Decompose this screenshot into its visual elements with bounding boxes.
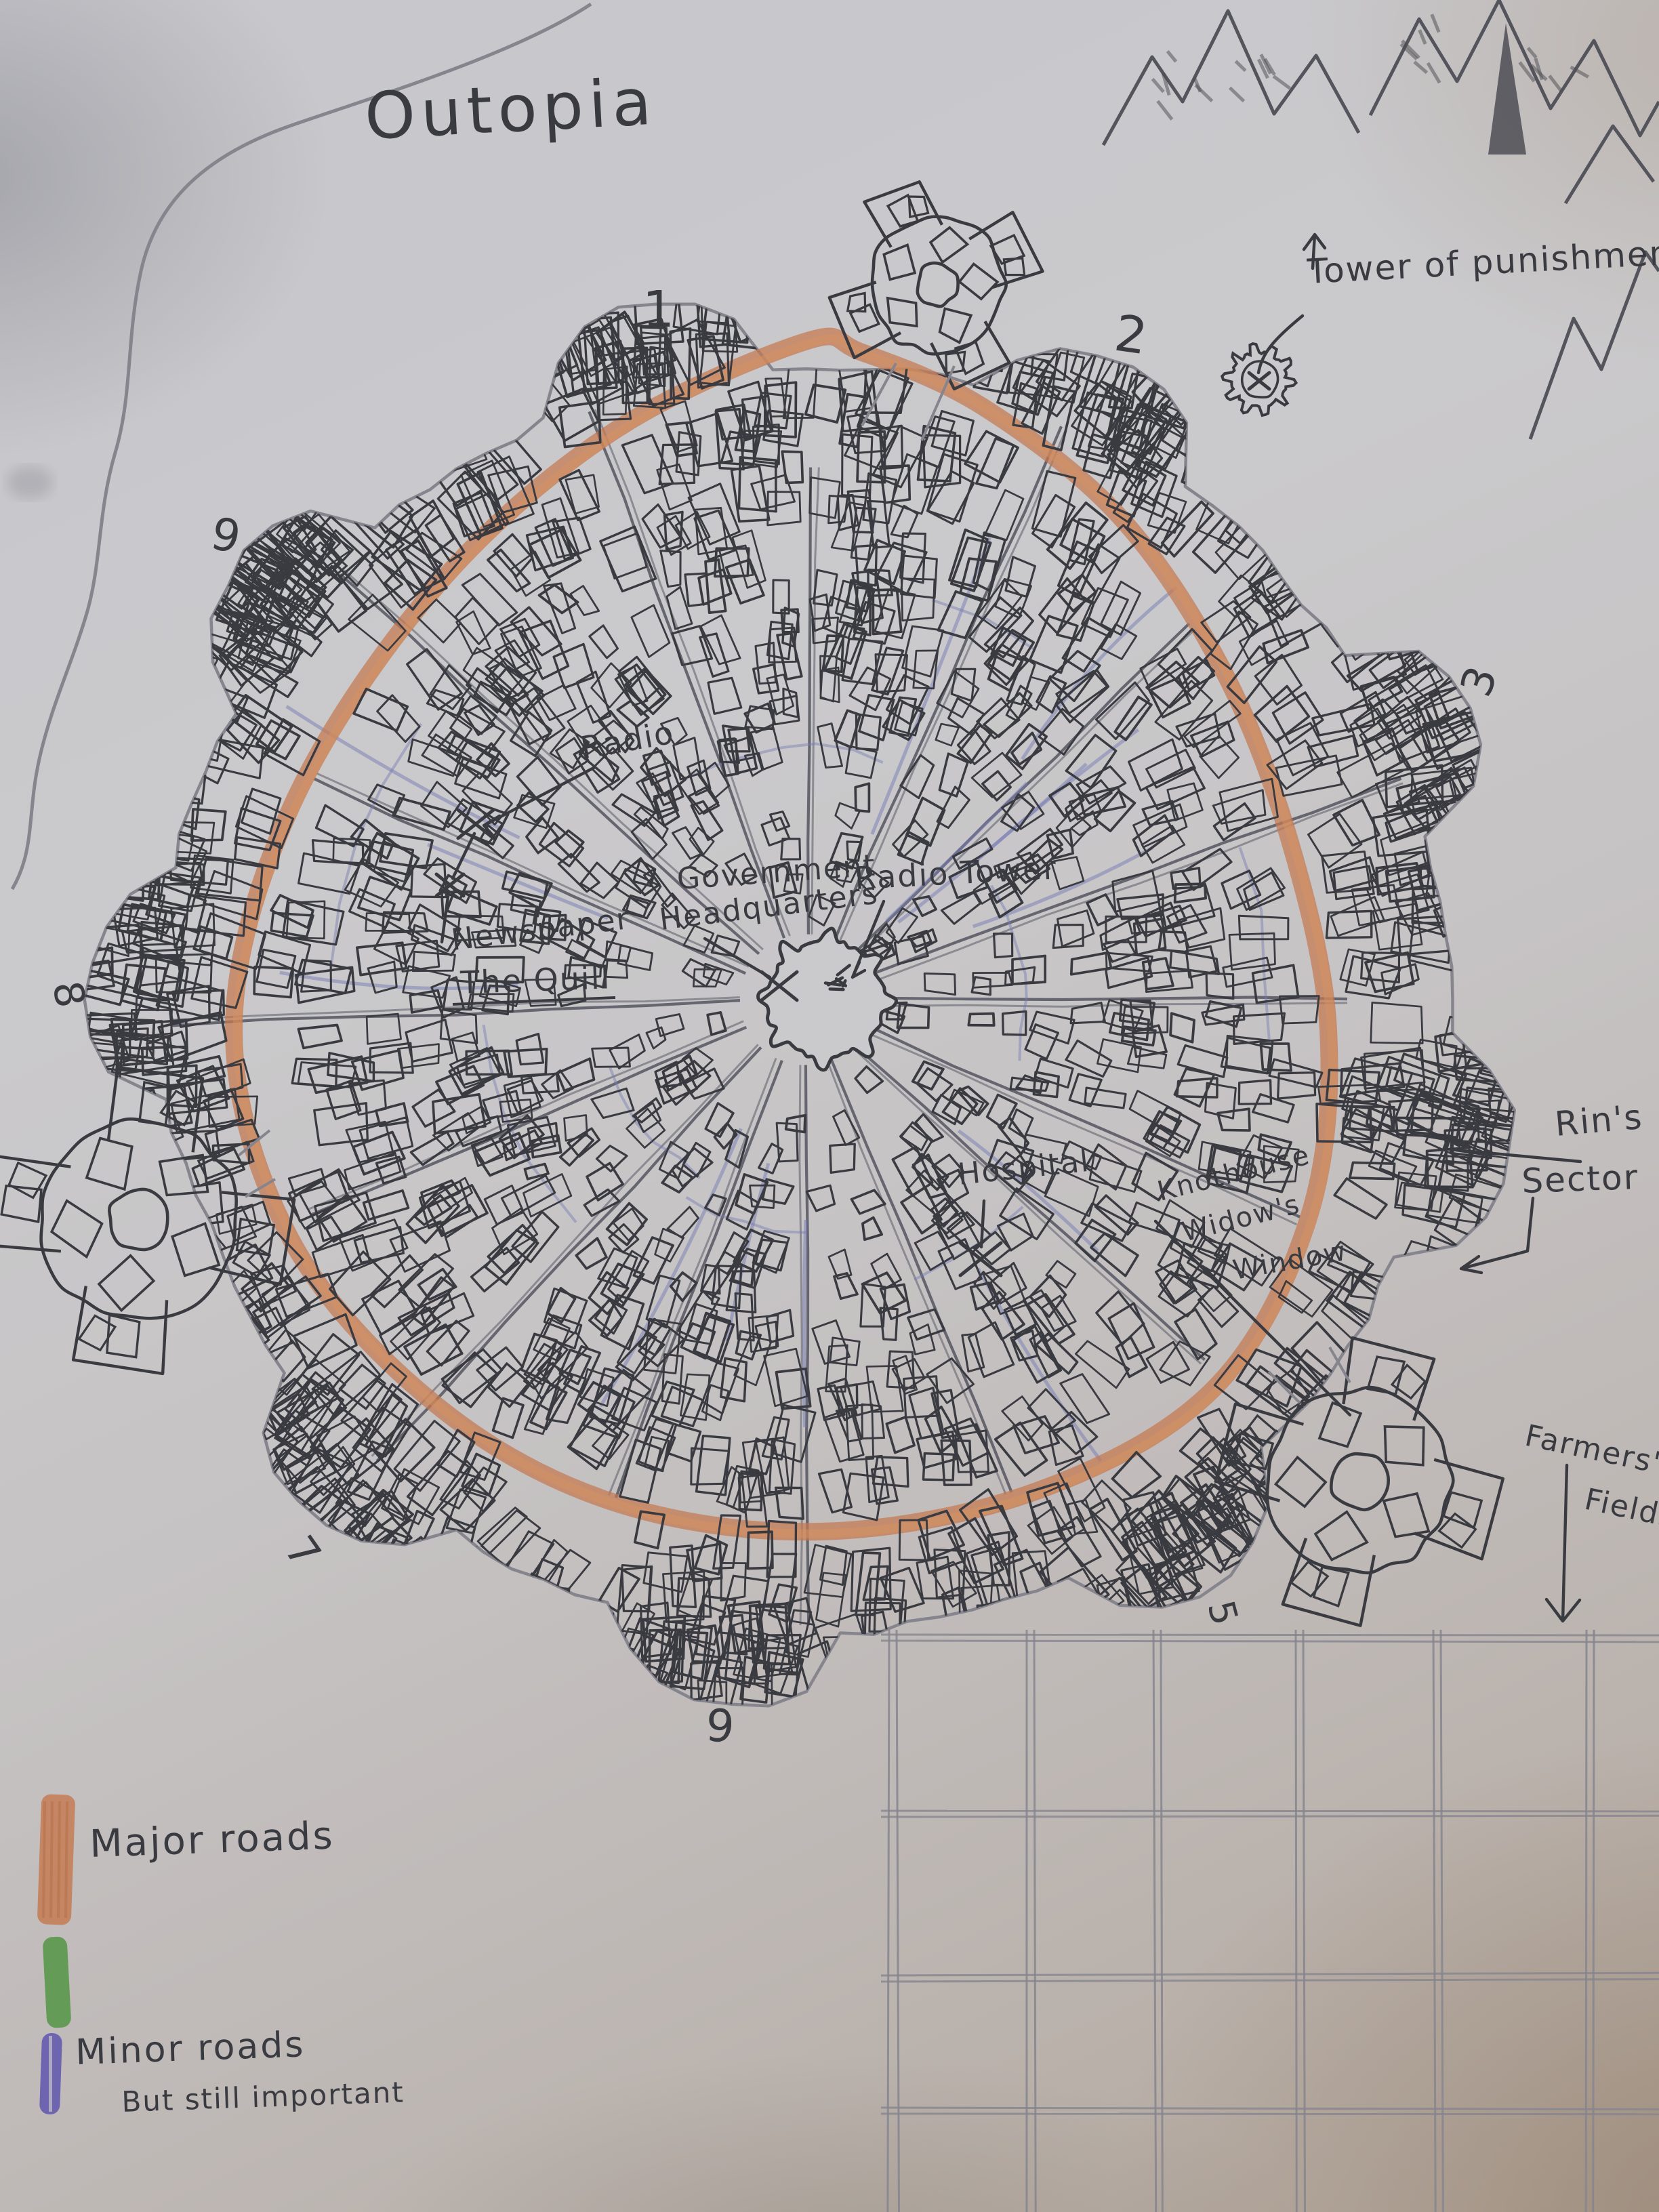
- city-block: [1174, 1069, 1214, 1107]
- field-grid-line: [1593, 1630, 1594, 2212]
- city-block: [1232, 443, 1313, 512]
- city-block: [1239, 1080, 1271, 1104]
- city-block: [1059, 1601, 1101, 1652]
- city-block: [541, 1587, 569, 1652]
- city-block: [764, 292, 793, 330]
- city-block: [628, 1665, 668, 1712]
- city-block: [814, 570, 838, 605]
- city-block: [810, 478, 840, 518]
- city-block: [1308, 814, 1361, 867]
- city-block: [1128, 1047, 1166, 1069]
- city-block: [907, 798, 945, 845]
- mountains: [1103, 0, 1659, 439]
- field-grid-line: [881, 1979, 1659, 1982]
- field-grid-line: [881, 1635, 1659, 1635]
- town-block: [888, 195, 918, 226]
- city-block: [1233, 451, 1290, 501]
- city-block: [832, 1674, 868, 1734]
- mountain-shading: [1168, 52, 1176, 62]
- city-block: [121, 1217, 170, 1269]
- town-block: [888, 298, 917, 326]
- city-block: [106, 808, 154, 842]
- city-block: [127, 734, 178, 771]
- city-block: [373, 1537, 444, 1599]
- city-block: [566, 475, 599, 514]
- city-block: [762, 818, 790, 846]
- city-block: [1198, 393, 1260, 472]
- city-block: [488, 550, 530, 591]
- map-title-text: Outopia: [363, 65, 658, 155]
- city-block: [142, 651, 218, 722]
- city-block: [1423, 710, 1491, 762]
- city-block: [584, 1189, 619, 1216]
- city-block: [937, 1633, 982, 1706]
- town-arm: [969, 212, 1042, 287]
- city-block: [1301, 1376, 1376, 1447]
- legend-swatch-texture: [66, 1801, 67, 1918]
- town-block: [1319, 1403, 1361, 1447]
- city-block: [759, 1144, 783, 1174]
- city-block: [617, 1326, 656, 1374]
- town-block: [1443, 1492, 1481, 1528]
- city-block: [1473, 813, 1514, 852]
- town-block: [52, 1201, 102, 1257]
- label-rins: Rin's: [1553, 1097, 1645, 1144]
- town-neck: [1330, 1347, 1350, 1382]
- city-block: [1435, 1198, 1494, 1258]
- city-block: [1279, 996, 1319, 1024]
- radio-tower-scribble: [830, 989, 844, 989]
- city-block: [100, 846, 159, 882]
- mountain-ridge: [1103, 11, 1359, 145]
- city-block: [474, 366, 529, 428]
- city-block: [211, 662, 276, 718]
- city-block: [340, 1220, 408, 1271]
- main-city: [56, 276, 1547, 1741]
- city-block: [541, 1550, 590, 1603]
- town-block: [1385, 1427, 1424, 1465]
- city-block: [783, 689, 798, 717]
- mountain-shading: [1428, 63, 1439, 83]
- town-centre: [918, 263, 958, 306]
- field-grid-line: [1153, 1630, 1156, 2212]
- city-block: [1267, 1457, 1335, 1518]
- mountain-shading: [1420, 30, 1426, 44]
- mountain-shading: [1273, 76, 1290, 88]
- city-block: [1378, 592, 1431, 640]
- city-block: [271, 913, 313, 937]
- city-block: [1454, 957, 1502, 998]
- city-block: [1182, 444, 1227, 495]
- city-block: [468, 1585, 514, 1637]
- city-block: [432, 352, 493, 415]
- field-grid-line: [1433, 1630, 1435, 2212]
- city-block: [999, 1635, 1047, 1691]
- city-block: [909, 1388, 944, 1438]
- city-block: [1294, 1410, 1340, 1454]
- outopia-map-photo: Outopia Tower of punishmentRadioGovernme…: [0, 0, 1659, 2212]
- city-block: [367, 1014, 401, 1044]
- legend-label-major-roads: Major roads: [89, 1814, 335, 1866]
- mountain-shading: [1230, 87, 1244, 101]
- city-block: [373, 1540, 415, 1598]
- city-block: [599, 1645, 634, 1700]
- city-block: [112, 1090, 165, 1136]
- city-block: [1277, 723, 1328, 775]
- central-plaza: [758, 928, 897, 1070]
- mountain-shading: [1195, 85, 1212, 102]
- mountain-ridge: [1565, 126, 1654, 203]
- city-block: [126, 756, 167, 790]
- city-block: [430, 364, 479, 431]
- city-block: [298, 1025, 342, 1048]
- city-block: [830, 1144, 855, 1172]
- city-block: [368, 962, 396, 993]
- city-block: [767, 1310, 794, 1343]
- city-block: [478, 1589, 519, 1652]
- city-block: [708, 1012, 726, 1035]
- city-block: [79, 828, 147, 886]
- city-block: [89, 845, 146, 869]
- city-block: [901, 556, 937, 598]
- city-block: [271, 895, 313, 928]
- city-block: [1343, 555, 1383, 594]
- city-block: [354, 1227, 403, 1263]
- city-block: [436, 1066, 483, 1104]
- radio-tower-scribble: [825, 983, 840, 985]
- town-block: [1276, 1457, 1326, 1507]
- city-block: [1474, 857, 1523, 897]
- mountain-shading: [1153, 79, 1164, 92]
- city-block: [1030, 1012, 1074, 1044]
- city-block: [1288, 490, 1346, 548]
- city-block: [377, 409, 430, 472]
- radial-street: [806, 1065, 808, 1626]
- legend-swatch-texture: [51, 1801, 52, 1918]
- sector-number-9-6: 9: [704, 1699, 737, 1753]
- city-block: [363, 1281, 416, 1334]
- city-block: [610, 1035, 645, 1069]
- city-block: [939, 1638, 968, 1679]
- city-block: [153, 832, 194, 861]
- city-block: [1322, 587, 1387, 647]
- mountain-shading: [1549, 76, 1561, 91]
- city-block: [983, 1266, 1026, 1314]
- sector-number-5-7: 5: [1199, 1596, 1246, 1631]
- city-block: [604, 533, 647, 579]
- city-block: [924, 973, 955, 994]
- legend: Major roadsMinor roadsBut still importan…: [37, 1794, 405, 2118]
- city-block: [1017, 1614, 1056, 1675]
- sector-number-1-0: 1: [642, 281, 676, 339]
- label-sector: Sector: [1521, 1158, 1639, 1201]
- city-block: [1338, 545, 1404, 609]
- legend-swatch-texture: [58, 1801, 60, 1918]
- city-block: [743, 293, 778, 341]
- field-grid-line: [881, 1973, 1659, 1975]
- farmers-arrow: [1547, 1465, 1580, 1621]
- city-block: [365, 472, 434, 533]
- city-block: [656, 1015, 684, 1036]
- field-grid-line: [1303, 1630, 1305, 2212]
- label-farmers: Farmers': [1522, 1418, 1659, 1481]
- town-block: [960, 264, 998, 300]
- field-grid-line: [881, 2108, 1659, 2110]
- city-block: [1460, 931, 1518, 972]
- city-block: [218, 1338, 266, 1389]
- city-block: [1471, 961, 1544, 1001]
- city-block: [1283, 534, 1339, 592]
- city-block: [571, 586, 599, 615]
- city-block: [1029, 1605, 1090, 1670]
- city-block: [1179, 908, 1224, 947]
- city-block: [512, 1212, 558, 1262]
- town-centre: [109, 1189, 167, 1250]
- city-block: [336, 453, 400, 515]
- city-block: [682, 959, 715, 986]
- city-block: [1479, 1008, 1546, 1054]
- city-block: [672, 827, 702, 859]
- city-block: [123, 1227, 175, 1275]
- city-block: [1334, 1179, 1387, 1218]
- city-block: [855, 1654, 906, 1717]
- town-body: [41, 1119, 236, 1318]
- city-block: [590, 626, 618, 658]
- city-block: [618, 945, 653, 970]
- city-block: [732, 466, 769, 522]
- city-block: [931, 1562, 976, 1607]
- city-block: [115, 773, 171, 825]
- city-block: [937, 787, 969, 828]
- legend-sublabel-minor-roads: But still important: [121, 2075, 405, 2118]
- city-block: [1037, 327, 1101, 400]
- town-block: [1315, 1512, 1367, 1560]
- city-block: [1371, 1002, 1423, 1043]
- city-block: [519, 329, 564, 386]
- city-block: [994, 934, 1012, 958]
- city-block: [485, 1230, 538, 1284]
- town-arm: [864, 182, 942, 247]
- city-block: [914, 651, 938, 689]
- city-block: [119, 738, 184, 792]
- city-block: [1097, 1292, 1144, 1345]
- town-block: [930, 228, 967, 262]
- map-title: Outopia: [363, 65, 658, 155]
- city-block: [768, 492, 801, 526]
- city-block: [1170, 1013, 1194, 1042]
- city-block: [159, 735, 201, 769]
- city-block: [1129, 1202, 1179, 1237]
- city-block: [568, 1128, 599, 1157]
- city-block: [1358, 603, 1406, 648]
- city-block: [348, 449, 405, 505]
- city-block: [362, 404, 425, 474]
- city-block: [782, 451, 802, 483]
- city-block: [494, 534, 533, 576]
- city-block: [1046, 1261, 1076, 1288]
- town-block: [107, 1315, 140, 1357]
- city-block: [457, 611, 491, 654]
- map-drawing: Outopia Tower of punishmentRadioGovernme…: [0, 0, 1659, 2212]
- city-block: [657, 516, 691, 555]
- city-block: [720, 276, 763, 342]
- city-block: [492, 1588, 562, 1664]
- tower-curve: [1258, 316, 1303, 373]
- city-block: [876, 1646, 934, 1706]
- city-block: [701, 1265, 720, 1294]
- legend-swatch-gap: [49, 2036, 52, 2112]
- city-block: [109, 744, 182, 799]
- city-block: [647, 1027, 665, 1048]
- city-block: [685, 573, 708, 606]
- mountain-shading: [1235, 61, 1245, 70]
- field-grid-line: [881, 1811, 1659, 1811]
- town-block: [884, 245, 915, 279]
- city-block: [1332, 596, 1389, 653]
- legend-swatch-green: [43, 1936, 72, 2028]
- city-block: [1109, 1303, 1153, 1359]
- city-block: [846, 746, 876, 778]
- town-centre: [1331, 1454, 1388, 1510]
- field-grid-line: [881, 1641, 1659, 1642]
- town-block: [1439, 1514, 1476, 1548]
- field-grid-line: [888, 1630, 889, 2212]
- city-block: [886, 1417, 914, 1453]
- city-block: [1218, 492, 1282, 558]
- city-block: [901, 755, 934, 798]
- city-block: [455, 598, 499, 644]
- city-block: [1076, 1341, 1129, 1388]
- town-arm: [1343, 1338, 1434, 1420]
- city-block: [850, 668, 890, 710]
- radial-street: [800, 1065, 802, 1626]
- city-block: [683, 1143, 710, 1176]
- city-block: [708, 678, 741, 714]
- city-block: [985, 490, 1023, 540]
- legend-swatch-texture: [43, 1801, 45, 1918]
- city-block: [632, 819, 666, 859]
- city-block: [591, 1614, 615, 1685]
- city-block: [1385, 1256, 1435, 1306]
- city-block: [568, 1417, 617, 1469]
- city-block: [406, 1020, 452, 1062]
- city-block: [1047, 1586, 1109, 1660]
- label-tower-of-punishment: Tower of punishment: [1306, 232, 1659, 291]
- city-block: [1398, 915, 1467, 955]
- legend-label-minor-roads: Minor roads: [75, 2024, 306, 2073]
- city-block: [356, 412, 412, 472]
- city-block: [1057, 911, 1094, 947]
- town-arm: [73, 1286, 167, 1374]
- city-block: [1010, 1636, 1056, 1685]
- mountain-shading: [1414, 62, 1427, 73]
- mountain-shading: [1432, 14, 1439, 32]
- label-radio-tower: Radio Tower: [854, 849, 1059, 897]
- sector-number-7-5: 7: [275, 1527, 332, 1578]
- town-block: [1384, 1494, 1429, 1537]
- fields-grid: [881, 1630, 1659, 2212]
- town-body: [872, 217, 1006, 354]
- city-block: [1082, 588, 1128, 637]
- town-block: [99, 1256, 154, 1311]
- city-block: [907, 1667, 934, 1711]
- field-grid-line: [881, 1816, 1659, 1817]
- city-block: [548, 1288, 575, 1322]
- town-block: [87, 1139, 132, 1189]
- town-block: [956, 342, 983, 374]
- town-block: [172, 1224, 219, 1276]
- city-block: [697, 1436, 730, 1495]
- city-block: [672, 626, 712, 665]
- sector-number-2-1: 2: [1111, 304, 1152, 367]
- city-block: [354, 689, 407, 731]
- city-block: [152, 638, 218, 689]
- city-block: [135, 739, 184, 773]
- radial-street: [873, 1003, 1347, 1007]
- city-block: [1328, 547, 1385, 613]
- field-grid-line: [897, 1630, 899, 2212]
- rins-hook: [1461, 1198, 1533, 1273]
- city-block: [936, 724, 959, 745]
- city-block: [806, 1185, 834, 1211]
- city-block: [661, 551, 680, 587]
- field-grid-line: [1296, 1630, 1296, 2212]
- city-block: [411, 1132, 453, 1165]
- label-hospital: Hospital: [956, 1144, 1092, 1192]
- city-block: [1471, 947, 1540, 983]
- label-fields: Fields: [1582, 1482, 1659, 1535]
- city-block: [515, 688, 565, 741]
- city-block: [1023, 1629, 1076, 1681]
- city-block: [134, 769, 183, 817]
- town-block: [940, 308, 971, 342]
- city-block: [443, 373, 510, 440]
- mountain-ridge: [1530, 252, 1659, 439]
- city-block: [863, 1218, 882, 1240]
- field-grid-line: [1586, 1630, 1586, 2212]
- city-block: [1095, 1578, 1161, 1643]
- tower-x: [1249, 373, 1269, 389]
- city-block: [642, 505, 680, 548]
- city-block: [857, 1656, 890, 1699]
- field-grid-line: [1034, 1630, 1036, 2212]
- city-block: [299, 853, 360, 894]
- city-block: [1076, 1220, 1115, 1261]
- mountain-shading: [1158, 101, 1172, 119]
- city-block: [798, 1641, 848, 1719]
- city-block: [901, 579, 935, 621]
- city-block: [977, 1605, 1018, 1670]
- city-block: [1426, 835, 1492, 873]
- city-block: [901, 1187, 941, 1233]
- field-grid-line: [881, 2114, 1659, 2114]
- city-block: [872, 1254, 901, 1290]
- city-block: [1467, 860, 1535, 884]
- city-block: [1006, 557, 1035, 597]
- field-grid-line: [1161, 1630, 1162, 2212]
- label-the-quill: The Quill: [459, 959, 611, 1001]
- city-block: [554, 644, 594, 688]
- city-block: [1482, 1113, 1527, 1150]
- paper-smudge: [7, 466, 53, 499]
- city-block: [587, 1163, 623, 1200]
- city-block: [914, 897, 936, 916]
- mountain-shading: [1528, 48, 1536, 58]
- city-block: [1327, 532, 1376, 583]
- city-block: [134, 1197, 181, 1232]
- city-block: [968, 1014, 994, 1025]
- city-block: [96, 800, 151, 828]
